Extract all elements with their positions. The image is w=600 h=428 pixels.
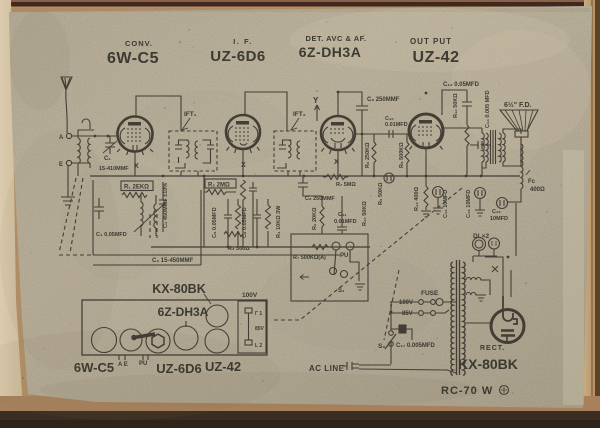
svg-text:R₈ 500KΩ: R₈ 500KΩ <box>399 142 405 168</box>
svg-text:R₁₂ 50KΩ: R₁₂ 50KΩ <box>453 93 459 118</box>
svg-text:C₁₅ 10MFD: C₁₅ 10MFD <box>466 190 472 218</box>
svg-text:I. F.: I. F. <box>233 37 253 46</box>
svg-text:100V: 100V <box>399 300 413 306</box>
svg-text:Y: Y <box>313 96 319 105</box>
svg-text:C₁₇ 0.005MFD: C₁₇ 0.005MFD <box>396 343 436 349</box>
svg-text:AC LINE: AC LINE <box>309 364 345 373</box>
svg-text:S₁: S₁ <box>338 288 345 294</box>
svg-text:C₁₄ 0.005 MFD: C₁₄ 0.005 MFD <box>485 90 491 128</box>
svg-text:R₅ 50KΩ: R₅ 50KΩ <box>378 182 384 205</box>
svg-text:100V: 100V <box>242 292 258 299</box>
svg-text:6Z-DH3A: 6Z-DH3A <box>158 305 209 319</box>
svg-text:IFT₂: IFT₂ <box>293 111 306 118</box>
svg-text:Fc: Fc <box>528 179 536 185</box>
svg-text:RECT.: RECT. <box>480 345 505 352</box>
svg-text:C₁₂ 10MFD: C₁₂ 10MFD <box>443 190 449 218</box>
svg-text:UZ-6D6: UZ-6D6 <box>210 48 266 65</box>
svg-text:85V: 85V <box>255 326 265 332</box>
svg-text:S₂: S₂ <box>378 343 385 350</box>
svg-text:UZ-42: UZ-42 <box>205 359 241 374</box>
svg-text:R₁₀ 50KΩ: R₁₀ 50KΩ <box>362 201 368 226</box>
svg-text:A E: A E <box>118 362 128 368</box>
svg-text:R₇ 5MΩ: R₇ 5MΩ <box>336 182 356 188</box>
svg-text:Γ 1: Γ 1 <box>255 311 262 317</box>
svg-text:C₁₃ 0.05MFD: C₁₃ 0.05MFD <box>443 82 480 88</box>
svg-text:R₉ 20KΩ: R₉ 20KΩ <box>312 207 318 230</box>
svg-text:C₁₆: C₁₆ <box>492 209 501 215</box>
svg-text:C₅ 0.05MFD: C₅ 0.05MFD <box>212 207 218 238</box>
svg-text:C₉ 250MMF: C₉ 250MMF <box>367 97 400 103</box>
svg-text:R₁ 2EKΩ: R₁ 2EKΩ <box>124 185 149 191</box>
svg-text:C₆ 0.05MFD: C₆ 0.05MFD <box>242 207 248 238</box>
svg-text:CONV.: CONV. <box>125 39 153 48</box>
svg-text:E: E <box>59 162 63 168</box>
svg-text:R₂ 2MΩ: R₂ 2MΩ <box>208 183 230 189</box>
svg-text:0.01MFD: 0.01MFD <box>385 122 408 128</box>
svg-text:0.01MFD: 0.01MFD <box>334 219 357 225</box>
svg-text:DET. AVC & AF.: DET. AVC & AF. <box>306 34 367 43</box>
svg-text:R₁₄ 400Ω: R₁₄ 400Ω <box>414 186 420 211</box>
svg-text:C₄ 0.05MFD: C₄ 0.05MFD <box>96 232 127 238</box>
svg-text:6Z-DH3A: 6Z-DH3A <box>299 44 362 60</box>
svg-text:C₈ 250MMF: C₈ 250MMF <box>305 196 335 202</box>
svg-text:C₂ 450MMF ±10%: C₂ 450MMF ±10% <box>163 183 169 228</box>
svg-text:IFT₁: IFT₁ <box>184 111 197 118</box>
svg-text:400Ω: 400Ω <box>530 187 545 193</box>
svg-text:6W-C5: 6W-C5 <box>74 360 114 375</box>
svg-text:C₃ 15-450MMF: C₃ 15-450MMF <box>152 258 193 264</box>
svg-text:OUT PUT: OUT PUT <box>410 37 452 46</box>
svg-text:R₆ 250KΩ: R₆ 250KΩ <box>365 142 371 168</box>
svg-text:RC-70 W: RC-70 W <box>441 385 493 397</box>
svg-text:85V: 85V <box>402 311 413 317</box>
svg-text:R₄ 10KΩ 3W: R₄ 10KΩ 3W <box>276 205 282 238</box>
svg-text:15-410MMF: 15-410MMF <box>99 166 129 172</box>
svg-text:A: A <box>59 135 64 141</box>
svg-text:PU: PU <box>340 253 348 259</box>
svg-text:PU: PU <box>139 361 147 367</box>
svg-text:C₁: C₁ <box>104 156 111 162</box>
svg-text:UZ-6D6: UZ-6D6 <box>156 361 202 376</box>
svg-text:C₁₁: C₁₁ <box>338 212 347 218</box>
svg-text:6½" F.D.: 6½" F.D. <box>504 101 531 109</box>
svg-text:R₇ 500KΩ(A): R₇ 500KΩ(A) <box>293 255 326 261</box>
svg-text:6W-C5: 6W-C5 <box>107 50 159 67</box>
svg-text:10MFD: 10MFD <box>490 216 508 222</box>
svg-text:KX-80BK: KX-80BK <box>152 282 206 296</box>
svg-text:KX-80BK: KX-80BK <box>458 356 518 372</box>
svg-text:L 2: L 2 <box>255 343 262 349</box>
svg-text:FUSE: FUSE <box>421 290 439 297</box>
svg-text:UZ-42: UZ-42 <box>413 49 460 66</box>
